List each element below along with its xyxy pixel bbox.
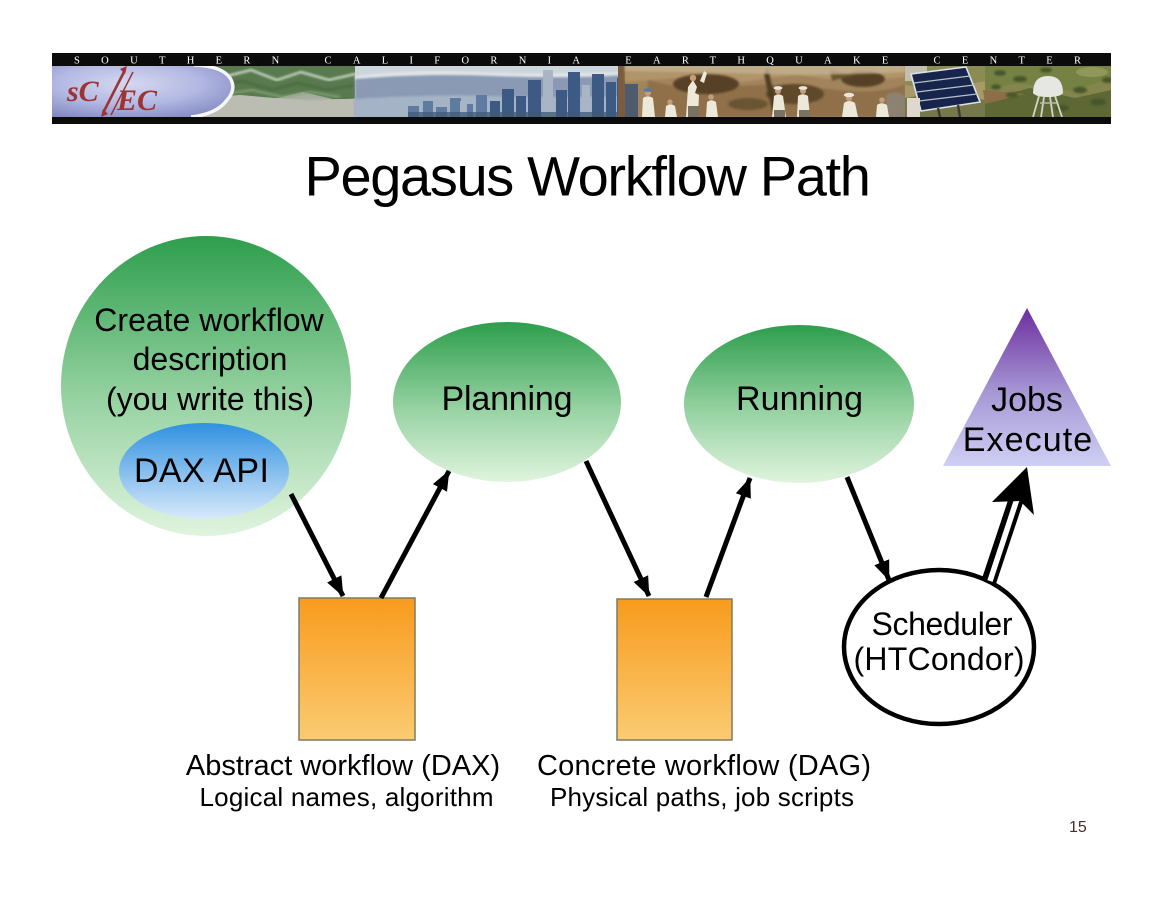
svg-text:DAX API: DAX API [134,452,269,490]
svg-text:description: description [133,341,288,377]
svg-text:15: 15 [1069,819,1087,836]
svg-text:Jobs: Jobs [991,381,1063,419]
svg-text:(HTCondor): (HTCondor) [854,641,1025,677]
svg-text:(you write this): (you write this) [106,381,314,417]
svg-text:Physical paths, job scripts: Physical paths, job scripts [550,782,854,812]
svg-text:Scheduler: Scheduler [872,606,1013,642]
svg-text:sC: sC [66,75,100,108]
svg-text:Abstract workflow (DAX): Abstract workflow (DAX) [186,750,500,782]
svg-text:Running: Running [736,380,863,418]
svg-text:Planning: Planning [442,380,573,418]
svg-text:EC: EC [116,84,158,117]
svg-text:Create workflow: Create workflow [94,302,324,338]
svg-text:Pegasus Workflow Path: Pegasus Workflow Path [304,145,869,208]
svg-text:Logical names, algorithm: Logical names, algorithm [200,782,494,812]
svg-text:Execute: Execute [963,421,1094,459]
svg-text:SOUTHERN CALIFORNIA EARTHQUAKE: SOUTHERN CALIFORNIA EARTHQUAKE CENTER [74,56,1088,67]
svg-text:Concrete workflow (DAG): Concrete workflow (DAG) [537,750,871,782]
